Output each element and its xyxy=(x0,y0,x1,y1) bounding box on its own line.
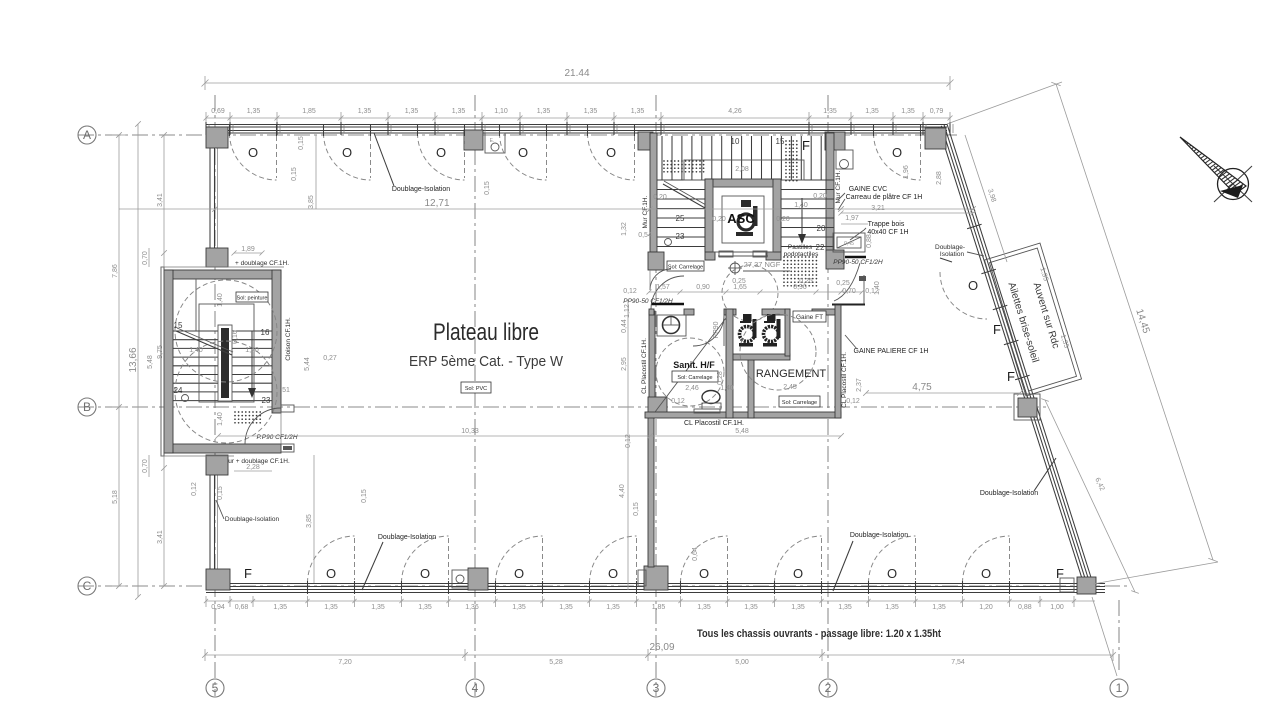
svg-text:1,35: 1,35 xyxy=(452,108,466,115)
svg-text:ASC: ASC xyxy=(727,211,755,226)
svg-text:1,35: 1,35 xyxy=(697,604,711,611)
svg-text:10,33: 10,33 xyxy=(461,428,479,435)
svg-text:7,54: 7,54 xyxy=(951,659,965,666)
svg-text:2,37: 2,37 xyxy=(856,378,863,392)
svg-text:O: O xyxy=(248,145,258,160)
svg-text:21.44: 21.44 xyxy=(564,68,589,79)
svg-text:Doublage-Isolation: Doublage-Isolation xyxy=(225,516,280,523)
svg-text:15: 15 xyxy=(174,321,183,330)
svg-text:0,68: 0,68 xyxy=(235,604,249,611)
svg-text:Plateau libre: Plateau libre xyxy=(433,319,539,346)
svg-text:1,35: 1,35 xyxy=(791,604,805,611)
svg-text:0,20: 0,20 xyxy=(653,194,667,201)
svg-text:Doublage-: Doublage- xyxy=(935,244,965,251)
svg-text:O: O xyxy=(514,566,524,581)
svg-text:Trappe bois: Trappe bois xyxy=(868,221,905,228)
svg-text:3,85: 3,85 xyxy=(306,514,313,528)
svg-text:23: 23 xyxy=(676,232,685,241)
svg-text:1,85: 1,85 xyxy=(652,604,666,611)
svg-text:1,35: 1,35 xyxy=(885,604,899,611)
svg-text:CL Placostil CF.1H.: CL Placostil CF.1H. xyxy=(684,420,744,427)
svg-text:O: O xyxy=(968,278,978,293)
svg-text:0,15: 0,15 xyxy=(291,167,298,181)
svg-text:1,89: 1,89 xyxy=(241,246,255,253)
svg-text:1,36: 1,36 xyxy=(465,604,479,611)
svg-text:O: O xyxy=(892,145,902,160)
svg-text:1,35: 1,35 xyxy=(371,604,385,611)
svg-text:1,35: 1,35 xyxy=(823,108,837,115)
svg-text:O: O xyxy=(793,566,803,581)
svg-text:1,40: 1,40 xyxy=(874,281,881,295)
svg-text:1,40: 1,40 xyxy=(189,347,203,354)
svg-text:1,10: 1,10 xyxy=(494,108,508,115)
svg-text:ERP 5ème Cat. - Type W: ERP 5ème Cat. - Type W xyxy=(409,354,563,370)
svg-text:1,35: 1,35 xyxy=(405,108,419,115)
svg-text:F: F xyxy=(1056,566,1064,581)
svg-text:5,48: 5,48 xyxy=(735,428,749,435)
svg-text:1,12: 1,12 xyxy=(624,304,631,318)
svg-text:4,40: 4,40 xyxy=(619,484,626,498)
svg-text:0,90: 0,90 xyxy=(696,284,710,291)
svg-text:0,15: 0,15 xyxy=(633,502,640,516)
svg-text:23: 23 xyxy=(262,396,271,405)
svg-text:1,35: 1,35 xyxy=(744,604,758,611)
svg-text:1,35: 1,35 xyxy=(559,604,573,611)
svg-text:Cloison CF.1H.: Cloison CF.1H. xyxy=(285,317,292,361)
svg-text:1,65: 1,65 xyxy=(733,284,747,291)
svg-text:1,35: 1,35 xyxy=(932,604,946,611)
svg-text:0,64: 0,64 xyxy=(692,547,699,561)
svg-text:0,44: 0,44 xyxy=(621,319,628,333)
svg-text:0,15: 0,15 xyxy=(217,486,224,500)
svg-text:CL Placostil CF.1H.: CL Placostil CF.1H. xyxy=(641,338,648,394)
svg-text:16: 16 xyxy=(261,328,270,337)
svg-text:22: 22 xyxy=(816,243,825,252)
svg-text:2: 2 xyxy=(825,681,832,695)
svg-text:Sanit. H/F: Sanit. H/F xyxy=(673,360,715,370)
svg-text:0,20: 0,20 xyxy=(776,216,790,223)
svg-text:1,57: 1,57 xyxy=(656,284,670,291)
svg-text:podotactiles: podotactiles xyxy=(784,251,819,258)
svg-text:2,28: 2,28 xyxy=(246,464,260,471)
svg-text:Sol: Carrelage: Sol: Carrelage xyxy=(677,375,712,381)
svg-text:1,35: 1,35 xyxy=(324,604,338,611)
svg-text:O: O xyxy=(608,566,618,581)
svg-text:Sol: Carrelage: Sol: Carrelage xyxy=(668,265,703,271)
svg-text:1,35: 1,35 xyxy=(606,604,620,611)
svg-text:Pastilles: Pastilles xyxy=(788,244,813,251)
svg-text:+ doublage CF.1H.: + doublage CF.1H. xyxy=(235,260,289,267)
svg-text:1,40: 1,40 xyxy=(794,202,808,209)
svg-text:C: C xyxy=(83,579,92,593)
svg-text:Sol: peinture: Sol: peinture xyxy=(237,296,268,302)
svg-text:O: O xyxy=(326,566,336,581)
svg-text:PP90-50 CF1/2H: PP90-50 CF1/2H xyxy=(833,259,883,266)
svg-text:5,28: 5,28 xyxy=(549,659,563,666)
svg-text:0,25: 0,25 xyxy=(799,278,813,285)
svg-text:15: 15 xyxy=(776,137,785,146)
svg-text:Doublage-Isolation: Doublage-Isolation xyxy=(378,534,436,541)
svg-text:Carreau de plâtre CF 1H: Carreau de plâtre CF 1H xyxy=(846,194,923,201)
svg-text:0,12: 0,12 xyxy=(191,482,198,496)
svg-text:O: O xyxy=(436,145,446,160)
svg-text:1,35: 1,35 xyxy=(901,108,915,115)
svg-text:B: B xyxy=(83,400,91,414)
svg-text:0,45: 0,45 xyxy=(844,241,854,247)
svg-text:1,35: 1,35 xyxy=(273,604,287,611)
svg-text:1,35: 1,35 xyxy=(838,604,852,611)
svg-text:RANGEMENT: RANGEMENT xyxy=(756,368,827,380)
svg-text:1,35: 1,35 xyxy=(631,108,645,115)
svg-text:1,20: 1,20 xyxy=(979,604,993,611)
svg-text:Doublage-Isolation: Doublage-Isolation xyxy=(850,532,908,539)
svg-text:O: O xyxy=(699,566,709,581)
svg-text:1,40: 1,40 xyxy=(720,385,734,392)
svg-text:2,88: 2,88 xyxy=(936,171,943,185)
svg-text:0,20: 0,20 xyxy=(813,193,827,200)
svg-text:7,20: 7,20 xyxy=(338,659,352,666)
svg-text:5: 5 xyxy=(212,681,219,695)
svg-text:2,08: 2,08 xyxy=(735,166,749,173)
svg-text:0,12: 0,12 xyxy=(623,288,637,295)
svg-text:10: 10 xyxy=(731,137,740,146)
svg-text:Doublage-Isolation: Doublage-Isolation xyxy=(392,186,450,193)
svg-text:25: 25 xyxy=(676,214,685,223)
svg-text:Sol: PVC: Sol: PVC xyxy=(465,386,487,392)
svg-text:Mur CF.1H.: Mur CF.1H. xyxy=(835,170,842,203)
svg-text:1,85: 1,85 xyxy=(302,108,316,115)
svg-text:O: O xyxy=(887,566,897,581)
svg-text:1,35: 1,35 xyxy=(247,108,261,115)
svg-text:0,94: 0,94 xyxy=(211,604,225,611)
svg-text:3,21: 3,21 xyxy=(871,205,885,212)
svg-text:5,44: 5,44 xyxy=(304,357,311,371)
svg-text:1,35: 1,35 xyxy=(584,108,598,115)
svg-text:0,20: 0,20 xyxy=(712,216,726,223)
svg-text:A: A xyxy=(83,128,91,142)
svg-text:1,35: 1,35 xyxy=(537,108,551,115)
svg-text:1,96: 1,96 xyxy=(903,165,910,179)
svg-text:7,86: 7,86 xyxy=(112,264,119,278)
svg-text:20: 20 xyxy=(817,224,826,233)
svg-text:O: O xyxy=(518,145,528,160)
svg-text:0,12: 0,12 xyxy=(625,434,632,448)
svg-text:0,16: 0,16 xyxy=(232,330,239,344)
svg-text:0,15: 0,15 xyxy=(298,136,305,150)
svg-text:0,25: 0,25 xyxy=(836,280,850,287)
svg-text:0,88: 0,88 xyxy=(1018,604,1032,611)
svg-text:O: O xyxy=(606,145,616,160)
svg-text:5,48: 5,48 xyxy=(147,355,154,369)
svg-text:1: 1 xyxy=(1116,681,1123,695)
svg-text:5,00: 5,00 xyxy=(735,659,749,666)
svg-text:4,26: 4,26 xyxy=(728,108,742,115)
svg-text:0,90: 0,90 xyxy=(793,284,807,291)
svg-text:9,75: 9,75 xyxy=(157,345,164,359)
svg-text:24: 24 xyxy=(174,386,183,395)
svg-text:0,15: 0,15 xyxy=(484,181,491,195)
svg-text:1,35: 1,35 xyxy=(512,604,526,611)
svg-text:40x40 CF 1H: 40x40 CF 1H xyxy=(867,229,908,236)
svg-text:2,45: 2,45 xyxy=(783,384,797,391)
svg-text:0,15: 0,15 xyxy=(361,489,368,503)
svg-text:2,46: 2,46 xyxy=(685,385,699,392)
svg-text:0,69: 0,69 xyxy=(211,108,225,115)
svg-text:0,70: 0,70 xyxy=(142,251,149,265)
svg-text:Gaine FT: Gaine FT xyxy=(796,314,823,321)
svg-text:PP90-50 CF1/2H: PP90-50 CF1/2H xyxy=(623,298,673,305)
svg-text:E.: E. xyxy=(490,138,495,144)
svg-text:0,79: 0,79 xyxy=(930,108,944,115)
svg-text:1,00: 1,00 xyxy=(1050,604,1064,611)
svg-text:1,35: 1,35 xyxy=(418,604,432,611)
svg-text:0,28: 0,28 xyxy=(717,371,724,385)
svg-text:F: F xyxy=(1007,369,1015,384)
svg-text:3,41: 3,41 xyxy=(157,193,164,207)
svg-text:0,27: 0,27 xyxy=(323,355,337,362)
svg-text:O: O xyxy=(981,566,991,581)
svg-text:1,32: 1,32 xyxy=(621,222,628,236)
svg-text:2,95: 2,95 xyxy=(621,357,628,371)
svg-text:F: F xyxy=(993,322,1001,337)
svg-text:0,70: 0,70 xyxy=(842,288,856,295)
svg-text:1,35: 1,35 xyxy=(358,108,372,115)
svg-text:12,71: 12,71 xyxy=(424,198,449,209)
svg-text:P.P90 CF1/2H: P.P90 CF1/2H xyxy=(256,434,297,441)
svg-text:0,88: 0,88 xyxy=(866,234,873,248)
svg-text:GAINE CVC: GAINE CVC xyxy=(849,186,888,193)
svg-text:26,09: 26,09 xyxy=(649,642,674,653)
svg-text:Sol: Carrelage: Sol: Carrelage xyxy=(782,400,817,406)
svg-text:1,40: 1,40 xyxy=(217,412,224,426)
svg-text:0,54: 0,54 xyxy=(638,232,652,239)
svg-text:1,40: 1,40 xyxy=(245,347,259,354)
svg-text:F: F xyxy=(802,138,810,153)
svg-text:1,35: 1,35 xyxy=(865,108,879,115)
svg-text:Tous les chassis ouvrants - pa: Tous les chassis ouvrants - passage libr… xyxy=(697,628,941,640)
svg-text:GAINE PALIERE CF 1H: GAINE PALIERE CF 1H xyxy=(854,348,929,355)
svg-text:0,70: 0,70 xyxy=(142,459,149,473)
svg-text:1,40: 1,40 xyxy=(217,293,224,307)
svg-text:0,25: 0,25 xyxy=(732,278,746,285)
svg-text:O: O xyxy=(420,566,430,581)
svg-text:13,66: 13,66 xyxy=(128,347,139,372)
svg-text:4: 4 xyxy=(472,681,479,695)
svg-text:0,12: 0,12 xyxy=(846,398,860,405)
svg-text:Isolation: Isolation xyxy=(940,251,965,258)
svg-text:5,18: 5,18 xyxy=(112,490,119,504)
svg-text:3: 3 xyxy=(653,681,660,695)
svg-text:O: O xyxy=(342,145,352,160)
svg-text:51: 51 xyxy=(282,387,290,394)
svg-text:Doublage-Isolation: Doublage-Isolation xyxy=(980,490,1038,497)
svg-text:F: F xyxy=(244,566,252,581)
svg-text:4,75: 4,75 xyxy=(912,382,932,393)
svg-text:1,97: 1,97 xyxy=(845,215,859,222)
svg-text:Mur CF.1H.: Mur CF.1H. xyxy=(642,195,649,228)
svg-text:3,85: 3,85 xyxy=(308,195,315,209)
svg-text:3,41: 3,41 xyxy=(157,530,164,544)
svg-text:0,12: 0,12 xyxy=(671,398,685,405)
